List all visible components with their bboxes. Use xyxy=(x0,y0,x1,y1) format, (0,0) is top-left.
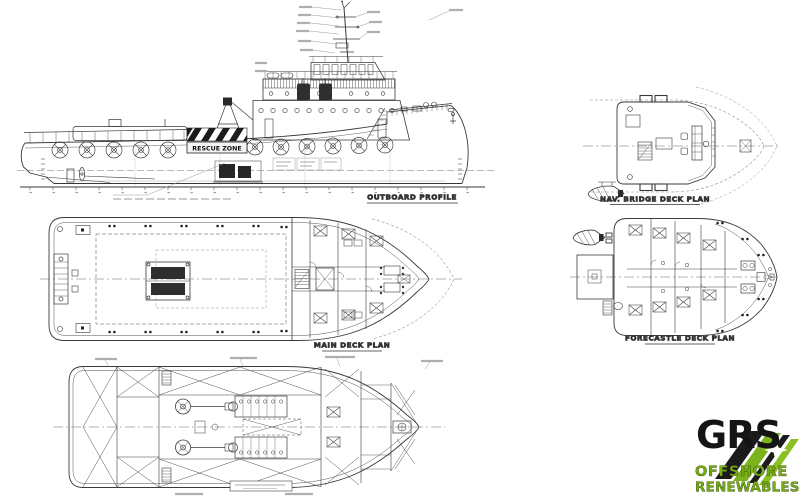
forecastle-caption: FORECASTLE DECK PLAN xyxy=(625,334,735,343)
rescue-boat xyxy=(573,230,612,245)
nav-bridge-plan-drawing: NAV. BRIDGE DECK PLAN xyxy=(578,82,788,207)
outboard-profile-drawing: RESCUE ZONE xyxy=(15,0,515,210)
logo-line2: RENEWABLES xyxy=(695,480,800,496)
wheelhouse xyxy=(617,102,715,184)
blueprint-canvas: RESCUE ZONE xyxy=(0,0,800,498)
rescue-zone-marking: RESCUE ZONE xyxy=(187,128,247,153)
logo-line1: OFFSHORE xyxy=(695,464,788,480)
nav-bridge-plan-view: NAV. BRIDGE DECK PLAN xyxy=(578,82,788,207)
deck-outline xyxy=(53,367,445,488)
grs-logo: GRS OFFSHORE RENEWABLES xyxy=(693,405,798,497)
logo-name: GRS xyxy=(696,413,781,457)
main-deck-plan-drawing: MAIN DECK PLAN xyxy=(40,212,470,357)
forecastle-plan-drawing: FORECASTLE DECK PLAN xyxy=(565,205,780,350)
grs-logo-drawing: GRS OFFSHORE RENEWABLES xyxy=(693,405,798,497)
machinery-cutaway xyxy=(213,158,341,182)
exhaust-stack xyxy=(319,84,332,101)
outboard-profile-view: RESCUE ZONE xyxy=(15,0,515,210)
stern-gear xyxy=(46,168,155,183)
nav-bridge-caption: NAV. BRIDGE DECK PLAN xyxy=(600,195,710,204)
cabin-fittings xyxy=(651,260,706,293)
lower-deck-plan-view xyxy=(25,355,460,498)
superstructure xyxy=(253,57,410,141)
forecastle-plan-view: FORECASTLE DECK PLAN xyxy=(565,205,780,350)
main-deck-caption: MAIN DECK PLAN xyxy=(314,341,391,350)
pilot-chair xyxy=(681,148,688,155)
annotation-labels xyxy=(255,7,463,71)
cabin-berths xyxy=(629,225,716,315)
bow-fittings xyxy=(401,102,456,124)
reference-lines xyxy=(17,150,497,193)
side-platform xyxy=(577,255,623,315)
bridge-wing-boxes xyxy=(640,96,667,191)
deck-below-outline xyxy=(583,87,778,205)
rescue-zone-label: RESCUE ZONE xyxy=(192,146,241,153)
deck-outline xyxy=(40,218,462,341)
main-deck-plan-view: MAIN DECK PLAN xyxy=(40,212,470,357)
label-box xyxy=(230,481,292,491)
outboard-profile-caption: OUTBOARD PROFILE xyxy=(367,193,457,202)
exhaust-stack xyxy=(297,84,310,101)
mess-area xyxy=(380,266,410,294)
engine-room-fittings xyxy=(162,371,301,482)
pilot-chair xyxy=(681,133,688,140)
lower-deck-plan-drawing xyxy=(25,355,460,498)
towing-winch xyxy=(146,262,190,300)
